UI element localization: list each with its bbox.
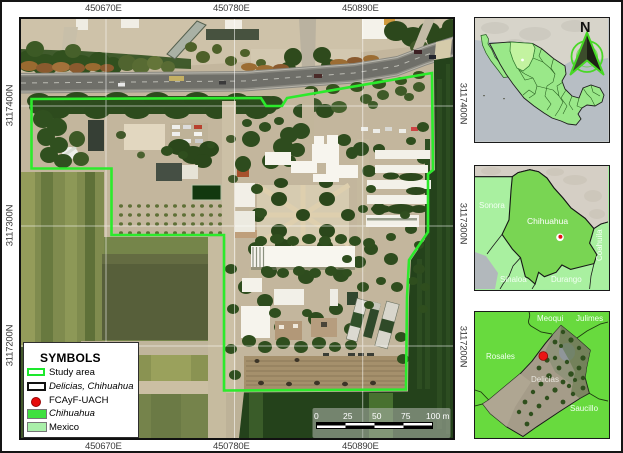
svg-text:Meoqui: Meoqui bbox=[537, 314, 563, 323]
svg-text:25: 25 bbox=[343, 411, 353, 421]
svg-text:Rosales: Rosales bbox=[486, 352, 515, 361]
svg-text:Sonora: Sonora bbox=[479, 201, 505, 210]
svg-text:Julimes: Julimes bbox=[576, 314, 603, 323]
svg-text:100 m: 100 m bbox=[426, 411, 450, 421]
svg-text:Chihuahua: Chihuahua bbox=[527, 216, 568, 226]
svg-text:Delicias: Delicias bbox=[531, 375, 559, 384]
svg-text:50: 50 bbox=[372, 411, 382, 421]
svg-text:Saucillo: Saucillo bbox=[570, 404, 599, 413]
svg-text:75: 75 bbox=[401, 411, 411, 421]
svg-text:0: 0 bbox=[314, 411, 319, 421]
svg-text:Sinaloa: Sinaloa bbox=[500, 275, 527, 284]
svg-text:N: N bbox=[580, 20, 590, 36]
svg-text:Coahuila: Coahuila bbox=[595, 229, 604, 261]
svg-text:Durango: Durango bbox=[551, 275, 582, 284]
